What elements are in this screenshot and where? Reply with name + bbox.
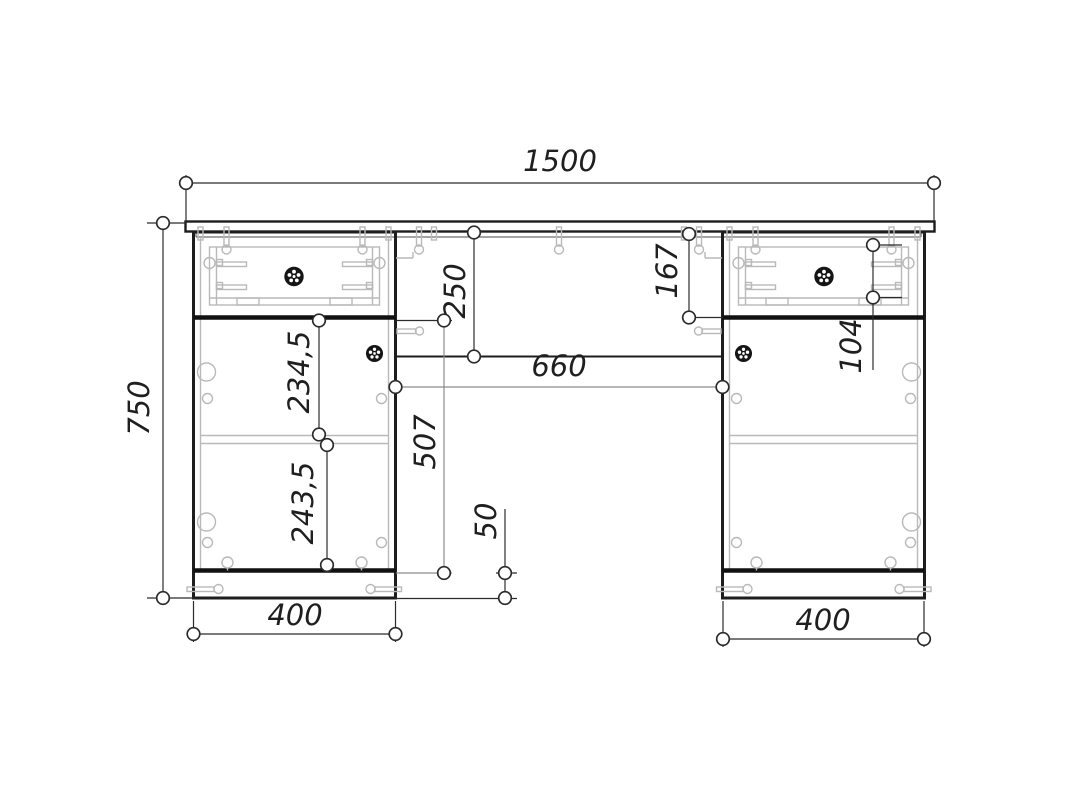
dim-below-drawer-label: 507: [408, 414, 442, 470]
dim-right-pedestal-width-label: 400: [795, 603, 850, 637]
dim-overall-width-label: 1500: [523, 144, 597, 178]
dimension-400-right: 400: [717, 601, 931, 647]
dimension-400-left: 400: [187, 598, 402, 642]
dim-overall-height-label: 750: [122, 380, 156, 435]
dimension-167: 167: [650, 228, 723, 324]
dim-center-opening-label: 660: [531, 349, 586, 383]
dimension-507: 507: [396, 314, 452, 579]
dim-lower-section-label: 243,5: [286, 461, 320, 544]
dim-back-panel-height-label: 250: [438, 263, 472, 318]
dimension-104: 104: [834, 239, 902, 374]
tabletop: [186, 222, 935, 238]
dim-right-back-offset-label: 167: [650, 243, 684, 299]
dimension-234-5: 234,5: [282, 314, 325, 441]
dimension-1500: 1500: [180, 144, 941, 221]
right-pedestal: [695, 227, 932, 598]
desk-assembly-drawing: 1500 750 400 400 660 250: [0, 0, 1067, 800]
dim-plinth-height-label: 50: [469, 503, 503, 540]
dimension-50: 50: [396, 503, 518, 605]
dim-drawer-box-height-label: 104: [834, 318, 868, 373]
dimension-750: 750: [122, 217, 195, 605]
dimension-243-5: 243,5: [286, 439, 333, 572]
dim-left-pedestal-width-label: 400: [267, 598, 322, 632]
drawing-canvas: 1500 750 400 400 660 250: [0, 0, 1067, 800]
dim-upper-section-label: 234,5: [282, 330, 316, 413]
